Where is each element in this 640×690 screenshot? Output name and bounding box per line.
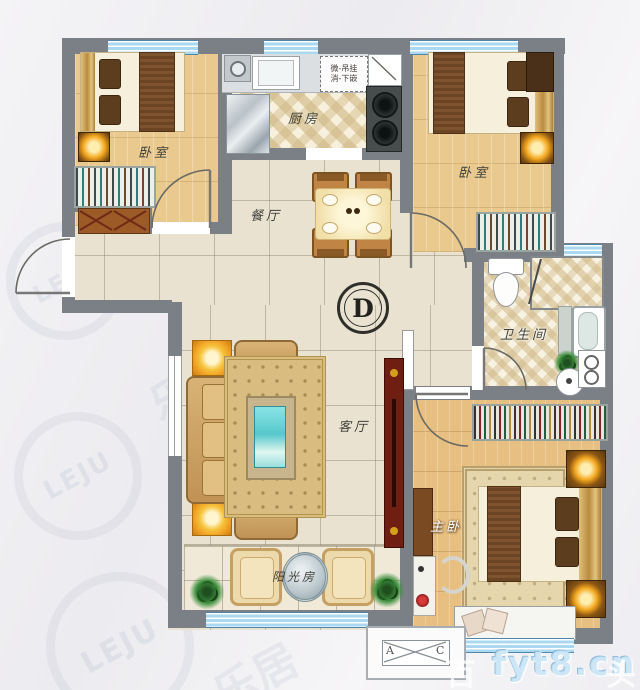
sunroom-window xyxy=(206,612,368,628)
sunroom-plant xyxy=(370,572,404,608)
entry-shoe-cabinet xyxy=(78,208,150,234)
room-label-bedroom-tr: 卧室 xyxy=(458,162,490,181)
leju-brand-watermark: 乐居 xyxy=(200,625,308,690)
coffee-table xyxy=(246,396,296,480)
ac-label-a: A xyxy=(386,644,394,657)
dressing-table-flower xyxy=(416,594,429,607)
bedroom-tr-bookshelf xyxy=(476,212,556,252)
bed-blanket xyxy=(433,52,465,134)
bath-shelf xyxy=(558,306,572,356)
kitchen-note-line2: 消-下嵌 xyxy=(331,74,358,84)
bed-blanket xyxy=(139,52,175,132)
sunroom-chair xyxy=(322,548,374,606)
floorplan-image: LEJU LEJU LEJU LEJU 乐居 乐居 乐居 乐居 xyxy=(0,0,640,690)
dining-plate xyxy=(322,194,338,206)
bedroom-tl-bed xyxy=(80,52,185,132)
master-nightstand-lamp xyxy=(566,450,606,488)
partial-watermark-right: 头 xyxy=(606,650,636,690)
wall-left-lower xyxy=(168,302,182,614)
kitchen-basin-top-right xyxy=(368,54,402,86)
wall-left-step xyxy=(62,300,172,313)
bed-pillow xyxy=(555,537,579,567)
master-dressing-table xyxy=(413,556,436,616)
bed-pillow xyxy=(555,497,579,531)
bedroom-tl-bookshelf xyxy=(74,166,156,208)
bedroom-tl-nightstand-lamp xyxy=(78,132,110,162)
bed-pillow xyxy=(507,97,529,127)
dining-plate xyxy=(366,194,382,206)
bed-pillow xyxy=(99,95,121,125)
kitchen-sink-basin xyxy=(258,60,294,86)
bedroom-tr-corner-cabinet xyxy=(526,52,554,92)
master-door-opening xyxy=(416,387,470,399)
stove-burner xyxy=(372,92,398,118)
master-bookshelf xyxy=(472,404,608,441)
dining-plate xyxy=(322,222,338,234)
tv-cabinet-handle xyxy=(390,527,398,535)
bed-headboard xyxy=(81,53,95,131)
room-label-master: 主卧 xyxy=(430,516,462,535)
tv-cabinet-handle xyxy=(390,369,398,377)
master-stool xyxy=(436,556,470,594)
unit-marker-circle: D xyxy=(337,282,389,334)
bedroom-tl-door-opening xyxy=(152,222,210,234)
entry-door-opening xyxy=(62,237,75,297)
kitchen-vent-circle xyxy=(230,61,246,77)
unit-marker-inner-ring: D xyxy=(344,289,382,327)
washer-dial xyxy=(584,370,599,385)
kitchen-window xyxy=(264,40,318,55)
bed-headboard xyxy=(579,487,601,581)
bedroom-tr-nightstand-lamp xyxy=(520,132,554,164)
shower-enclosure xyxy=(530,256,604,310)
bathtub-inner xyxy=(578,312,598,350)
kitchen-opening xyxy=(306,148,362,160)
dining-plate xyxy=(366,222,382,234)
bed-blanket xyxy=(487,486,521,582)
room-label-kitchen: 厨房 xyxy=(288,108,320,127)
room-label-bathroom: 卫生间 xyxy=(500,324,548,343)
kitchen-note-box: 微-吊挂 消-下嵌 xyxy=(320,56,368,92)
dining-centerpiece xyxy=(346,208,352,214)
stove-burner xyxy=(372,120,398,146)
ac-label-c: C xyxy=(436,644,444,657)
tv-cabinet xyxy=(384,358,404,548)
bathroom-door-opening xyxy=(472,346,484,390)
room-label-dining: 餐厅 xyxy=(250,205,282,224)
kitchen-fridge xyxy=(226,94,270,154)
partial-watermark-left: 百 xyxy=(446,650,476,690)
room-label-sunroom: 阳光房 xyxy=(272,568,317,585)
bathroom-sink-drain xyxy=(566,378,572,384)
unit-marker-letter: D xyxy=(352,294,374,323)
sunroom-beam xyxy=(184,544,408,546)
leju-logo-watermark: LEJU xyxy=(0,389,165,562)
dressing-table-item xyxy=(418,566,424,572)
living-side-window xyxy=(168,356,182,456)
room-label-bedroom-tl: 卧室 xyxy=(138,142,170,161)
coffee-table-glass xyxy=(254,406,286,468)
sunroom-plant xyxy=(190,574,224,610)
master-bed xyxy=(478,486,602,582)
kitchen-note-line1: 微-吊挂 xyxy=(331,64,358,74)
room-label-living: 客厅 xyxy=(338,416,370,435)
bed-pillow xyxy=(99,59,121,89)
washer-dial xyxy=(584,355,599,370)
tv-screen xyxy=(392,399,396,507)
